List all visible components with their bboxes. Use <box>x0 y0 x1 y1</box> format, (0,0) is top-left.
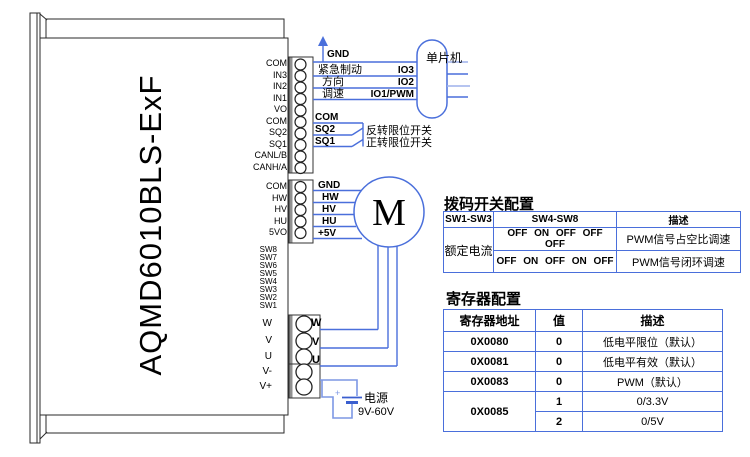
pin-label: V+ <box>232 381 272 392</box>
reg-val: 1 <box>536 392 583 412</box>
battery-plus-label: + <box>335 389 340 399</box>
pin-label: COM <box>227 117 287 127</box>
reg-col-header: 寄存器地址 <box>444 310 536 332</box>
reg-desc: 0/3.3V <box>583 392 723 412</box>
dip-switch-table: SW1-SW3 SW4-SW8 描述 额定电流 OFF ON OFF OFF O… <box>443 211 741 273</box>
block3-pin-circles <box>296 316 312 365</box>
pin-label: V- <box>232 366 272 377</box>
pin-label: 5VO <box>227 228 287 238</box>
pin-label: COM <box>227 182 287 192</box>
sq1-wire-label: SQ1 <box>315 136 335 147</box>
phase-wire-label: V <box>312 336 319 348</box>
pin-label: SW1 <box>237 302 277 311</box>
reg-desc: 0/5V <box>583 412 723 432</box>
reg-val: 2 <box>536 412 583 432</box>
pin-label: SQ2 <box>227 128 287 138</box>
sq2-switch-icon <box>352 128 363 135</box>
pin-label: HW <box>227 194 287 204</box>
sq1-switch-icon <box>352 140 363 147</box>
com-wire-label: COM <box>315 112 338 123</box>
table-row: 0X0080 0 低电平限位（默认） <box>444 332 723 352</box>
table-row: 0X0083 0 PWM（默认） <box>444 372 723 392</box>
pin-label: CANH/A <box>227 163 287 173</box>
reg-col-header: 值 <box>536 310 583 332</box>
pin-label: SQ1 <box>227 140 287 150</box>
reg-desc: 低电平限位（默认） <box>583 332 723 352</box>
speed-label: 调速 <box>322 88 344 100</box>
motor-letter: M <box>369 191 409 235</box>
power-range-label: 9V-60V <box>358 406 394 418</box>
phase-wire-label: W <box>311 317 321 329</box>
wiring-diagram: AQMD6010BLS-ExF COM IN3 IN2 IN1 VO COM S… <box>0 0 750 457</box>
hall-wire-label: HU <box>322 216 336 227</box>
hall-wire-label: +5V <box>318 228 336 239</box>
dip-row-group: 额定电流 <box>444 228 494 273</box>
dip-sw-setting: OFF ON OFF OFF OFF <box>494 228 617 251</box>
io1-pwm-label: IO1/PWM <box>354 89 414 100</box>
reg-addr: 0X0083 <box>444 372 536 392</box>
direction-label: 方向 <box>322 76 344 88</box>
pin-label: IN1 <box>227 94 287 104</box>
pin-label: V <box>232 335 272 346</box>
reg-val: 0 <box>536 332 583 352</box>
reg-desc: PWM（默认） <box>583 372 723 392</box>
reg-addr: 0X0080 <box>444 332 536 352</box>
pin-label: U <box>232 351 272 362</box>
dip-desc: PWM信号闭环调速 <box>617 251 741 273</box>
dip-col-header: SW1-SW3 <box>444 212 494 228</box>
reg-addr: 0X0085 <box>444 392 536 432</box>
hall-wire-label: HW <box>322 192 339 203</box>
phase-wires <box>320 245 397 366</box>
mcu-label: 单片机 <box>426 51 439 99</box>
gnd-arrow-icon <box>318 36 328 46</box>
hall-wire-label: HV <box>322 204 336 215</box>
register-table-title: 寄存器配置 <box>446 288 521 309</box>
device-model-label: AQMD6010BLS-ExF <box>133 60 173 390</box>
pin-label: COM <box>227 59 287 69</box>
io3-label: IO3 <box>354 65 414 76</box>
phase-wire-label: U <box>312 354 320 366</box>
dip-sw-setting: OFF ON OFF ON OFF <box>494 251 617 273</box>
reg-desc: 低电平有效（默认） <box>583 352 723 372</box>
pin-label: CANL/B <box>227 151 287 161</box>
table-row: 额定电流 OFF ON OFF OFF OFF PWM信号占空比调速 <box>444 228 741 251</box>
pin-label: HU <box>227 217 287 227</box>
io2-label: IO2 <box>354 77 414 88</box>
reg-val: 0 <box>536 372 583 392</box>
sq2-desc-label: 反转限位开关 <box>366 125 432 137</box>
sq2-wire-label: SQ2 <box>315 124 335 135</box>
mcu-right-stub-wires <box>447 62 470 97</box>
pin-label: W <box>232 318 272 329</box>
power-wires <box>320 380 357 418</box>
block2-pin-circles <box>295 182 306 239</box>
pin-label: IN2 <box>227 82 287 92</box>
table-row: 0X0081 0 低电平有效（默认） <box>444 352 723 372</box>
pin-label: VO <box>227 105 287 115</box>
register-table: 寄存器地址 值 描述 0X0080 0 低电平限位（默认） 0X0081 0 低… <box>443 309 723 432</box>
dip-col-header: SW4-SW8 <box>494 212 617 228</box>
pin-label: IN3 <box>227 71 287 81</box>
sq1-desc-label: 正转限位开关 <box>366 137 432 149</box>
reg-addr: 0X0081 <box>444 352 536 372</box>
battery-icon <box>342 398 362 403</box>
hall-wire-label: GND <box>318 180 340 191</box>
power-label: 电源 <box>364 392 388 405</box>
reg-val: 0 <box>536 352 583 372</box>
pin-label: HV <box>227 205 287 215</box>
gnd-wire-label: GND <box>327 49 349 60</box>
dip-col-header: 描述 <box>617 212 741 228</box>
terminal-block-edges <box>290 58 293 398</box>
reg-col-header: 描述 <box>583 310 723 332</box>
dip-desc: PWM信号占空比调速 <box>617 228 741 251</box>
table-row: 0X0085 1 0/3.3V <box>444 392 723 412</box>
